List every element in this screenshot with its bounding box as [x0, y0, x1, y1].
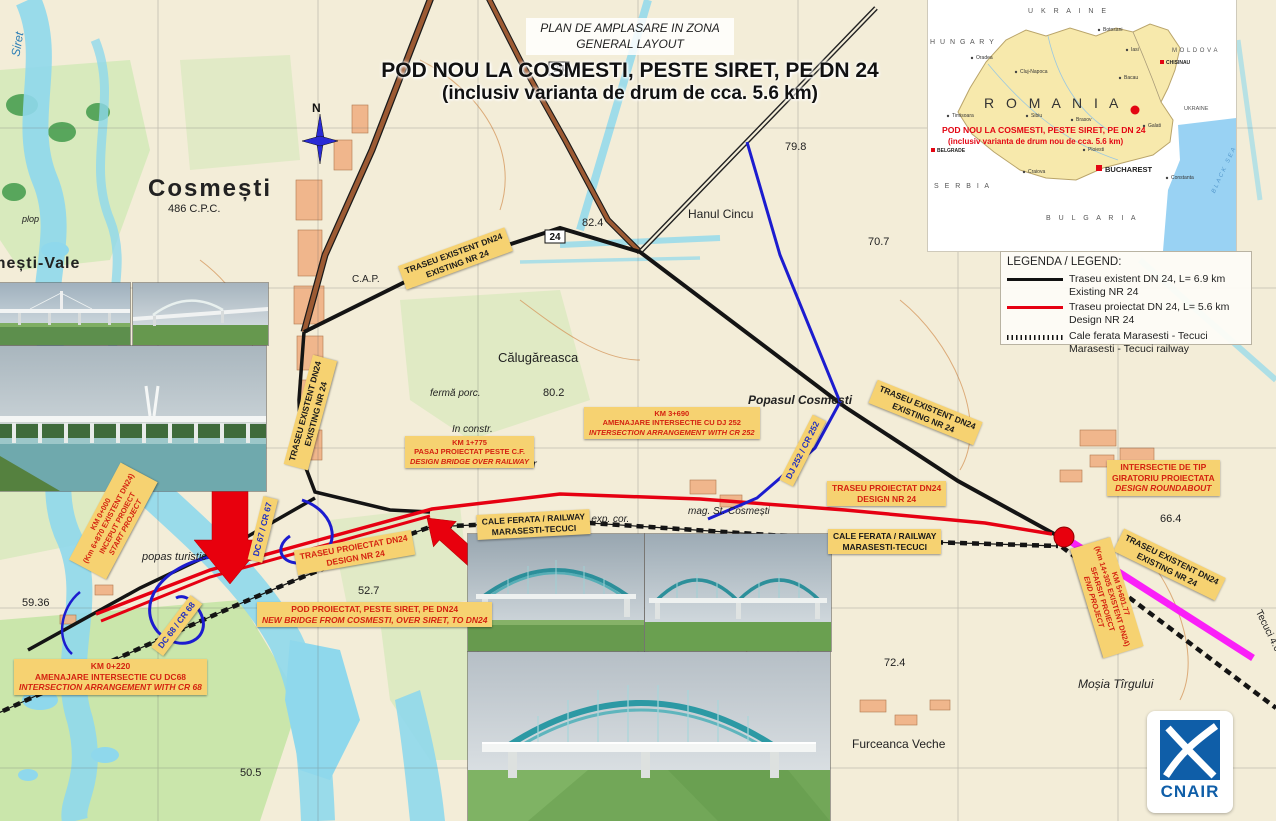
inset-romania-label: R O M A N I A: [984, 95, 1122, 111]
inset-city-bacau: Bacau: [1124, 75, 1138, 81]
label-in-constr: In constr.: [452, 424, 493, 435]
inset-caption-1: POD NOU LA COSMESTI, PESTE SIRET, PE DN …: [942, 125, 1146, 135]
inset-city-cluj: Cluj-Napoca: [1020, 69, 1048, 75]
legend-existing-en: Existing NR 24: [1069, 286, 1225, 299]
legend-item-railway: Cale ferata Marasesti - Tecuci Marasesti…: [1007, 330, 1245, 356]
callout-new-bridge: POD PROIECTAT, PESTE SIRET, PE DN24NEW B…: [257, 602, 492, 627]
legend-railway-ro: Cale ferata Marasesti - Tecuci: [1069, 330, 1208, 343]
inset-city-timisoara: Timisoara: [952, 113, 974, 119]
label-plop: plop: [21, 214, 39, 224]
inset-caption-2: (inclusiv varianta de drum nou de cca. 5…: [948, 137, 1124, 146]
bridge-render-big: [468, 652, 830, 821]
callout-km3690-intersection: KM 3+690AMENAJARE INTERSECTIE CU DJ 252I…: [584, 407, 760, 439]
inset-city-belgrade: BELGRADE: [937, 148, 966, 154]
legend-line-railway: [1007, 330, 1069, 340]
elev-50-5: 50.5: [240, 767, 261, 779]
label-popas-turistic: popas turistic: [141, 551, 207, 563]
cnair-logo-icon: [1160, 720, 1220, 780]
inset-project-dot: [1131, 106, 1140, 115]
legend-title: LEGENDA / LEGEND:: [1007, 256, 1245, 268]
callout-km1775-overpass: KM 1+775PASAJ PROIECTAT PESTE C.F.DESIGN…: [405, 436, 534, 468]
inset-ukraine-north: U K R A I N E: [1028, 8, 1109, 15]
elev-52-7: 52.7: [358, 585, 379, 597]
plan-sheet: N 24 24 Cosmești 486 C.P.C. Cosmești-Val…: [0, 0, 1276, 821]
cnair-logo-text: CNAIR: [1147, 782, 1233, 802]
inset-city-constanta: Constanta: [1171, 175, 1194, 181]
legend-design-en: Design NR 24: [1069, 314, 1229, 327]
road-24-shield: 24: [549, 232, 561, 243]
inset-city-chisinau: CHISINAU: [1166, 60, 1191, 66]
label-popasul-cosmesti: Popasul Cosmești: [748, 393, 853, 407]
legend-railway-en: Marasesti - Tecuci railway: [1069, 343, 1208, 356]
label-st-cosmesti: mag. St. Cosmești: [688, 506, 770, 517]
plan-title-ro: PLAN DE AMPLASARE IN ZONA: [540, 21, 720, 37]
elev-70-7: 70.7: [868, 236, 889, 248]
cnair-logo: CNAIR: [1147, 711, 1233, 813]
romania-inset-map: U K R A I N E H U N G A R Y M O L D O V …: [928, 0, 1236, 251]
label-calugareasca: Călugăreasca: [498, 350, 579, 365]
inset-city-galati: Galati: [1148, 123, 1161, 129]
legend-existing-ro: Traseu existent DN 24, L= 6.9 km: [1069, 273, 1225, 286]
inset-city-craiova: Craiova: [1028, 169, 1045, 175]
inset-city-sibiu: Sibiu: [1031, 113, 1042, 119]
bridge-render-mid-a: [468, 534, 644, 651]
elev-80-2: 80.2: [543, 387, 564, 399]
legend-item-existing: Traseu existent DN 24, L= 6.9 km Existin…: [1007, 273, 1245, 299]
inset-hungary: H U N G A R Y: [930, 39, 995, 46]
bridge-render-thumb-1: [0, 283, 130, 345]
legend-item-design: Traseu proiectat DN 24, L= 5.6 km Design…: [1007, 301, 1245, 327]
label-cosmesti: Cosmești: [148, 175, 272, 202]
inset-city-oradea: Oradea: [976, 55, 993, 61]
bridge-render-mid-b: [645, 534, 831, 651]
roundabout-marker: [1054, 527, 1074, 547]
label-cosmesti-vale: Cosmești-Vale: [0, 255, 80, 272]
inset-city-ploiesti: Ploiesti: [1088, 147, 1104, 153]
callout-railway-right: CALE FERATA / RAILWAYMARASESTI-TECUCI: [828, 529, 941, 554]
inset-city-brasov: Brasov: [1076, 117, 1092, 123]
label-cap: C.A.P.: [352, 274, 380, 285]
elev-79-8: 79.8: [785, 141, 806, 153]
inset-city-bucharest: BUCHAREST: [1105, 165, 1153, 174]
inset-city-iasi: Iasi: [1131, 47, 1139, 53]
elev-59-36: 59.36: [22, 597, 50, 609]
title-block: PLAN DE AMPLASARE IN ZONA GENERAL LAYOUT…: [330, 18, 930, 105]
label-hanul-cincu: Hanul Cincu: [688, 207, 753, 221]
inset-city-botosani: Botosani: [1103, 27, 1122, 33]
callout-design-roundabout: INTERSECTIE DE TIPGIRATORIU PROIECTATADE…: [1107, 460, 1220, 496]
elev-66-4: 66.4: [1160, 513, 1181, 525]
label-mosia: Moșia Tîrgului: [1078, 677, 1154, 691]
callout-design-dn24-right: TRASEU PROIECTAT DN24DESIGN NR 24: [827, 481, 946, 506]
legend-design-ro: Traseu proiectat DN 24, L= 5.6 km: [1069, 301, 1229, 314]
legend-line-existing: [1007, 273, 1069, 281]
inset-moldova: M O L D O V A: [1172, 48, 1218, 54]
label-furceanca: Furceanca Veche: [852, 737, 946, 751]
inset-serbia: S E R B I A: [934, 183, 991, 190]
inset-bulgaria: B U L G A R I A: [1046, 215, 1139, 222]
project-subtitle: (inclusiv varianta de drum de cca. 5.6 k…: [330, 83, 930, 105]
inset-ukraine-east: UKRAINE: [1184, 106, 1209, 112]
elev-72-4: 72.4: [884, 657, 905, 669]
callout-km0220-intersection: KM 0+220AMENAJARE INTERSECTIE CU DC68INT…: [14, 659, 207, 695]
label-ferma: fermă porc.: [430, 388, 481, 399]
bridge-render-thumb-2: [133, 283, 268, 345]
legend-line-design: [1007, 301, 1069, 309]
elev-82-4: 82.4: [582, 217, 603, 229]
legend-panel: LEGENDA / LEGEND: Traseu existent DN 24,…: [1000, 251, 1252, 345]
title-box: PLAN DE AMPLASARE IN ZONA GENERAL LAYOUT: [526, 18, 734, 55]
compass-north-label: N: [312, 101, 321, 115]
label-cosmesti-elev: 486 C.P.C.: [168, 203, 220, 215]
plan-title-en: GENERAL LAYOUT: [540, 37, 720, 53]
project-title: POD NOU LA COSMESTI, PESTE SIRET, PE DN …: [330, 59, 930, 83]
